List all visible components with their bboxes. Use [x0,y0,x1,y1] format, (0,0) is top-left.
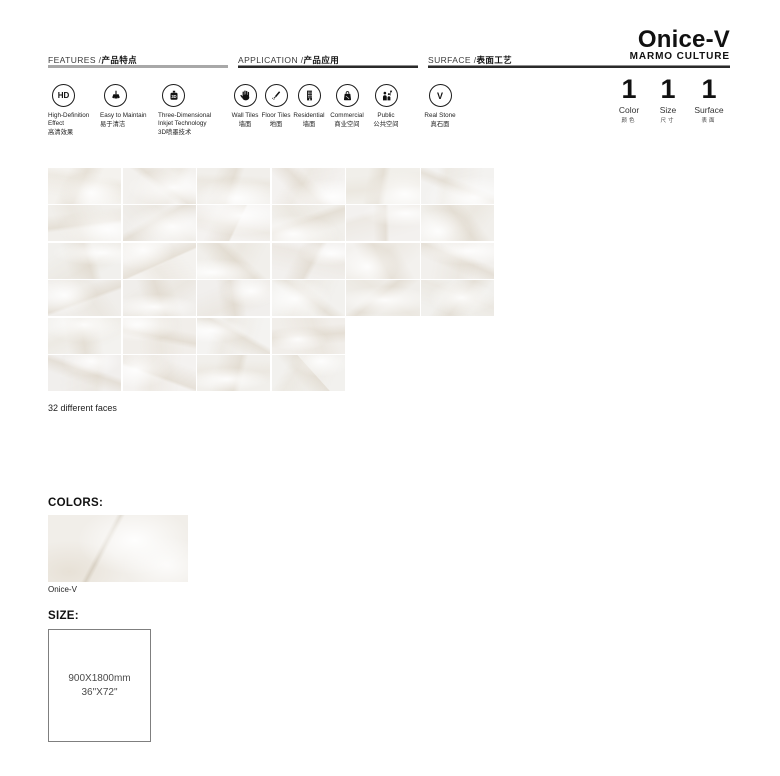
tile-grid [48,168,498,394]
surface-item-label-en: Real Stone [424,112,455,120]
stat-color: 1 Color 颜色 [610,76,648,124]
tile-grid-caption: 32 different faces [48,403,117,413]
application-label-zh: 墙面 [303,121,316,129]
svg-text:3D: 3D [171,93,176,98]
brand-name: MARMO CULTURE [500,51,730,62]
tile-face [48,205,121,241]
application-label-zh: 商业空间 [334,121,359,129]
surface-label-en: SURFACE / [428,55,476,65]
application-label-en: Residential [293,112,324,120]
stat-size-value: 1 [660,76,675,103]
size-dimensions-in: 36"X72" [81,686,117,700]
size-dimensions-mm: 900X1800mm [68,672,130,686]
application-label-en: Commercial [330,112,364,120]
tile-face [123,168,196,204]
inkjet-3d-icon: 3D [162,84,185,107]
catalog-page: { "brand": { "product_name": "Onice-V", … [0,0,780,776]
feature-label-zh: 3D喷墨技术 [158,129,191,137]
tile-face [421,205,494,241]
shopping-bag-icon [336,84,359,107]
tile-face [272,318,345,354]
tile-face [48,318,121,354]
surface-item-real-stone: V Real Stone 真石面 [418,84,462,129]
hand-icon [234,84,257,107]
stat-color-label: Color [619,105,639,115]
application-item-public: Public 公共空间 [367,84,405,129]
stat-size-label-zh: 尺寸 [660,116,675,124]
application-item-commercial: Commercial 商业空间 [327,84,367,129]
feature-label-en: Easy to Maintain [100,112,147,120]
tile-face [272,355,345,391]
tile-face [197,205,270,241]
feature-item-hd: HD High-Definition Effect 高清效果 [48,84,98,138]
stat-color-label-zh: 颜色 [621,116,636,124]
feature-item-maintain: Easy to Maintain 易于清洁 [100,84,154,129]
tile-face [197,280,270,316]
color-swatch-label: Onice-V [48,585,77,594]
features-divider [48,65,228,68]
tile-face [123,205,196,241]
application-item-floor: Floor Tiles 地面 [261,84,291,129]
building-icon [298,84,321,107]
application-items-row: Wall Tiles 墙面 Floor Tiles 地面 [229,84,405,129]
application-divider [238,65,418,68]
pencil-icon [265,84,288,107]
application-label-en: APPLICATION / [238,55,304,65]
application-label-en: Floor Tiles [261,112,290,120]
tile-face [197,168,270,204]
application-item-residential: Residential 墙面 [291,84,327,129]
feature-label-zh: 高清效果 [48,129,73,137]
tile-face [346,168,419,204]
tile-face [123,243,196,279]
tile-face [123,280,196,316]
tile-face [197,355,270,391]
application-label-zh: 地面 [270,121,283,129]
feature-item-inkjet: 3D Three-Dimensional Inkjet Technology 3… [158,84,220,138]
tile-face [197,243,270,279]
tile-face [421,280,494,316]
v-icon: V [429,84,452,107]
stat-size-label: Size [660,105,677,115]
stat-surface-label-zh: 表面 [701,116,716,124]
application-label-en: Wall Tiles [232,112,259,120]
product-title: Onice-V [500,26,730,54]
tile-face [421,243,494,279]
application-label-en: Public [377,112,394,120]
tile-face [123,318,196,354]
tile-face [48,280,121,316]
tile-face [346,280,419,316]
tile-face [197,318,270,354]
tile-face [48,243,121,279]
brush-icon [104,84,127,107]
surface-divider [428,65,730,68]
application-item-wall: Wall Tiles 墙面 [229,84,261,129]
stat-surface-value: 1 [701,76,716,103]
tile-face [272,205,345,241]
stat-surface: 1 Surface 表面 [686,76,732,124]
tile-face [48,355,121,391]
tile-face [272,243,345,279]
feature-label-en: Three-Dimensional Inkjet Technology [158,112,220,128]
hd-icon: HD [52,84,75,107]
application-label-zh: 墙面 [239,121,252,129]
color-swatch [48,515,188,582]
feature-label-zh: 易于清洁 [100,121,125,129]
tile-face [272,168,345,204]
features-label-zh: 产品特点 [101,55,137,65]
application-label-zh: 公共空间 [373,121,398,129]
size-box: 900X1800mm 36"X72" [48,629,151,742]
tile-face [421,168,494,204]
tile-face [272,280,345,316]
application-label-zh: 产品应用 [304,55,340,65]
feature-label-en: High-Definition Effect [48,112,98,128]
surface-item-label-zh: 真石面 [431,121,450,129]
tile-face [346,243,419,279]
tile-face [346,205,419,241]
tile-face [48,168,121,204]
features-label-en: FEATURES / [48,55,101,65]
stat-color-value: 1 [621,76,636,103]
tile-face [123,355,196,391]
stat-surface-label: Surface [694,105,723,115]
size-heading: SIZE: [48,610,79,622]
stat-size: 1 Size 尺寸 [650,76,686,124]
colors-heading: COLORS: [48,497,103,509]
people-icon [375,84,398,107]
